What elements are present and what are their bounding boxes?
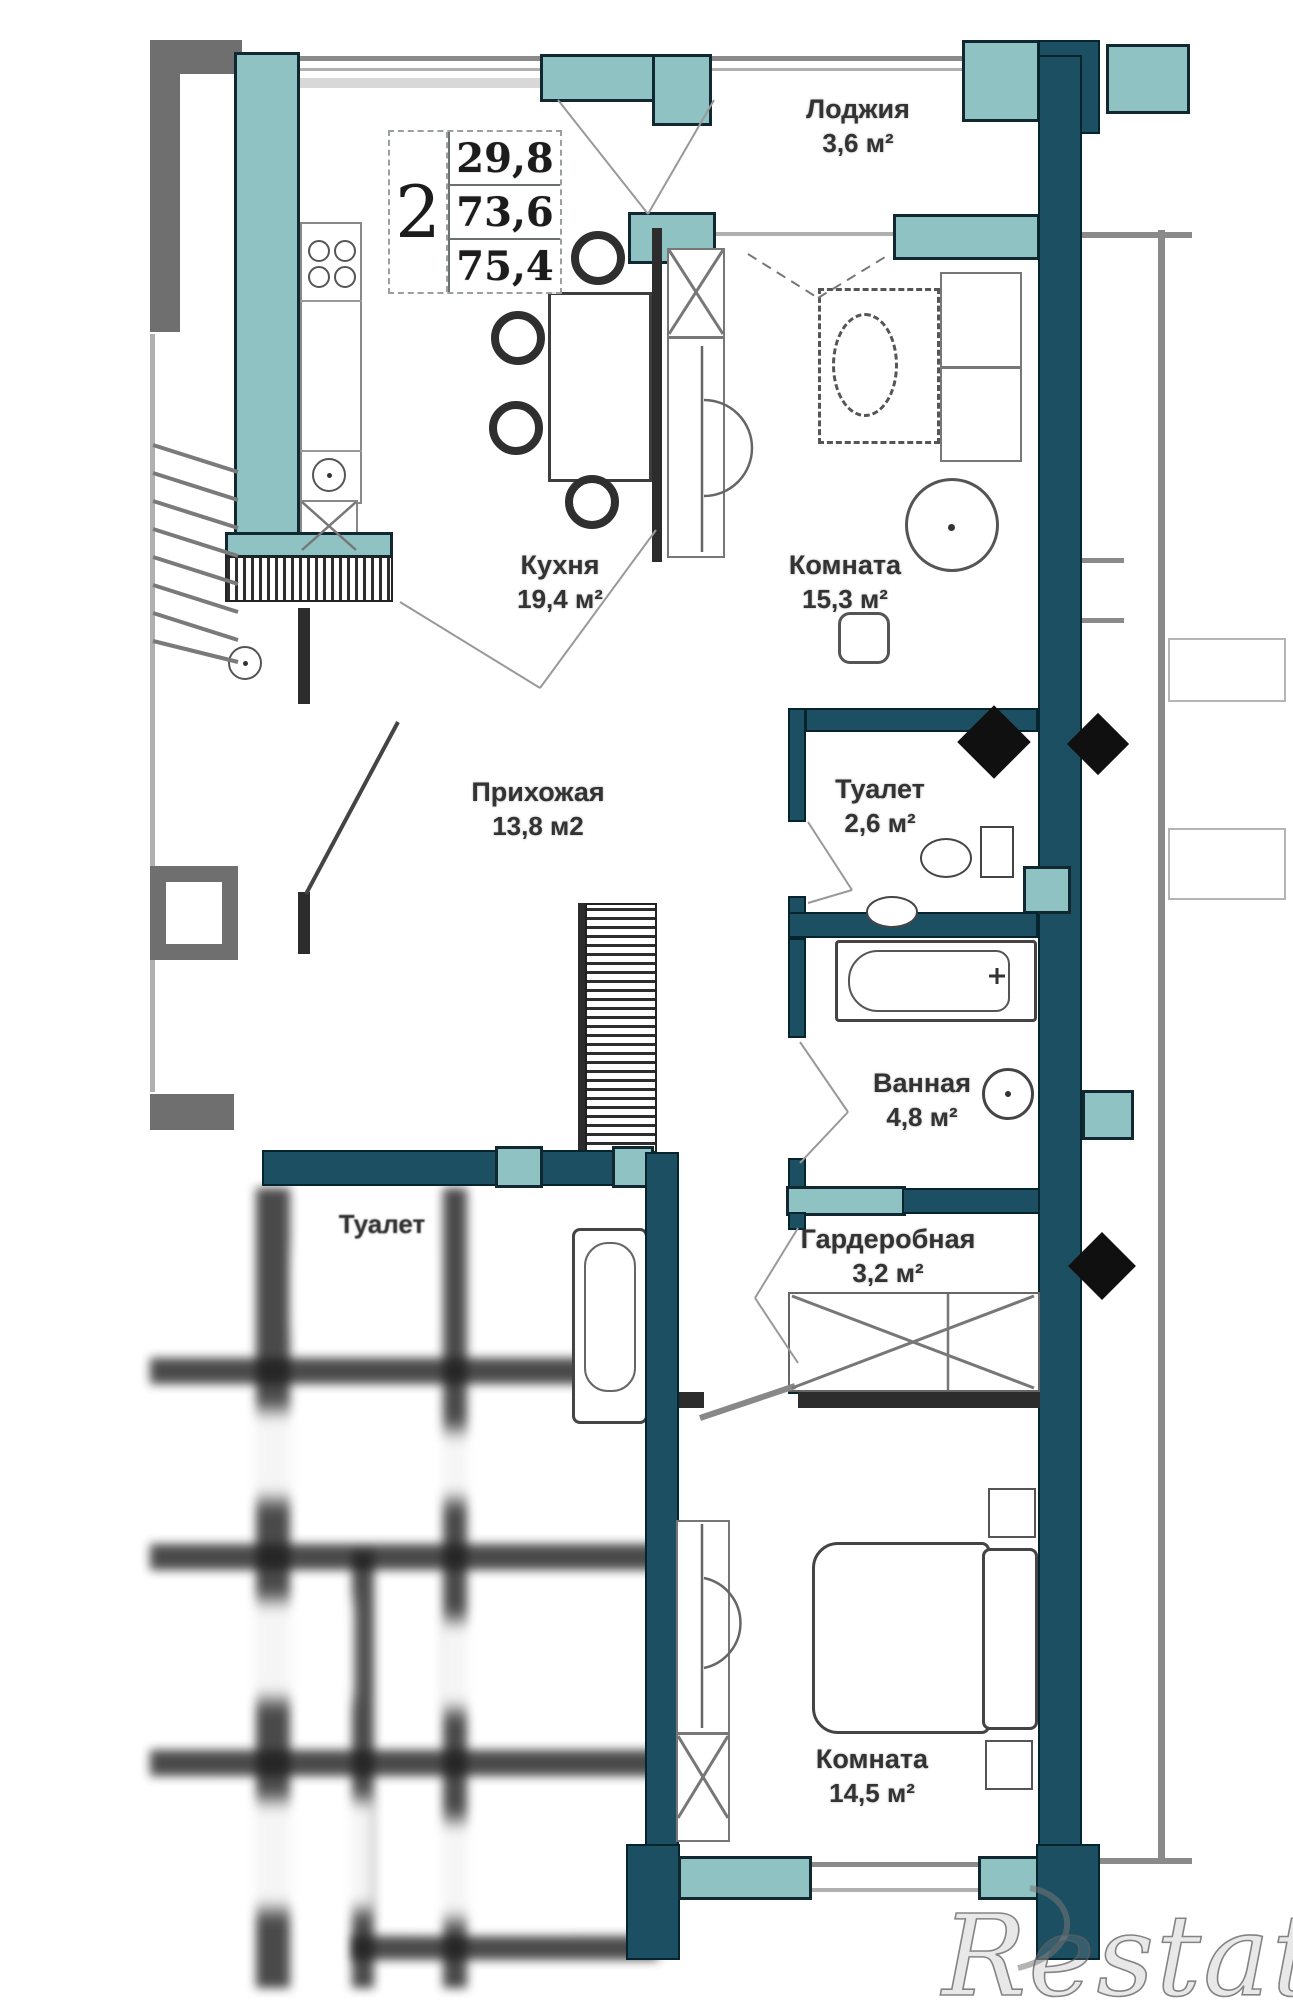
watermark: Restate (942, 1892, 1293, 2000)
room-name: Комната (789, 548, 901, 583)
room-area: 4,8 м² (873, 1101, 971, 1134)
apartment-stamp: 2 29,8 73,6 75,4 (388, 130, 562, 294)
plan-linework (0, 0, 1293, 2000)
room-area: 3,6 м² (806, 127, 910, 160)
area-usable: 73,6 (450, 186, 560, 240)
room-label-bathroom: Ванная 4,8 м² (873, 1066, 971, 1134)
area-living: 29,8 (450, 132, 560, 186)
room-name: Лоджия (806, 92, 910, 127)
room-label-wc: Туалет 2,6 м² (835, 772, 925, 840)
room-label-room-1: Комната 15,3 м² (789, 548, 901, 616)
room-name: Кухня (517, 548, 603, 583)
room-label-loggia: Лоджия 3,6 м² (806, 92, 910, 160)
room-area: 3,2 м² (801, 1257, 976, 1290)
room-name: Туалет (339, 1208, 426, 1241)
room-label-hallway: Прихожая 13,8 м2 (471, 775, 604, 843)
room-name: Гардеробная (801, 1222, 976, 1257)
room-label-kitchen: Кухня 19,4 м² (517, 548, 603, 616)
room-name: Прихожая (471, 775, 604, 810)
room-label-neighbor-wc: Туалет (339, 1208, 426, 1241)
room-name: Ванная (873, 1066, 971, 1101)
room-label-room-2: Комната 14,5 м² (816, 1742, 928, 1810)
room-name: Комната (816, 1742, 928, 1777)
area-total: 75,4 (450, 240, 560, 292)
room-area: 14,5 м² (816, 1777, 928, 1810)
floor-plan: 2 29,8 73,6 75,4 Лоджия 3,6 м² Кухня 19,… (0, 0, 1293, 2000)
room-label-wardrobe: Гардеробная 3,2 м² (801, 1222, 976, 1290)
room-name: Туалет (835, 772, 925, 807)
room-area: 19,4 м² (517, 583, 603, 616)
room-area: 15,3 м² (789, 583, 901, 616)
rooms-count: 2 (390, 132, 448, 292)
room-area: 13,8 м2 (471, 810, 604, 843)
room-area: 2,6 м² (835, 807, 925, 840)
